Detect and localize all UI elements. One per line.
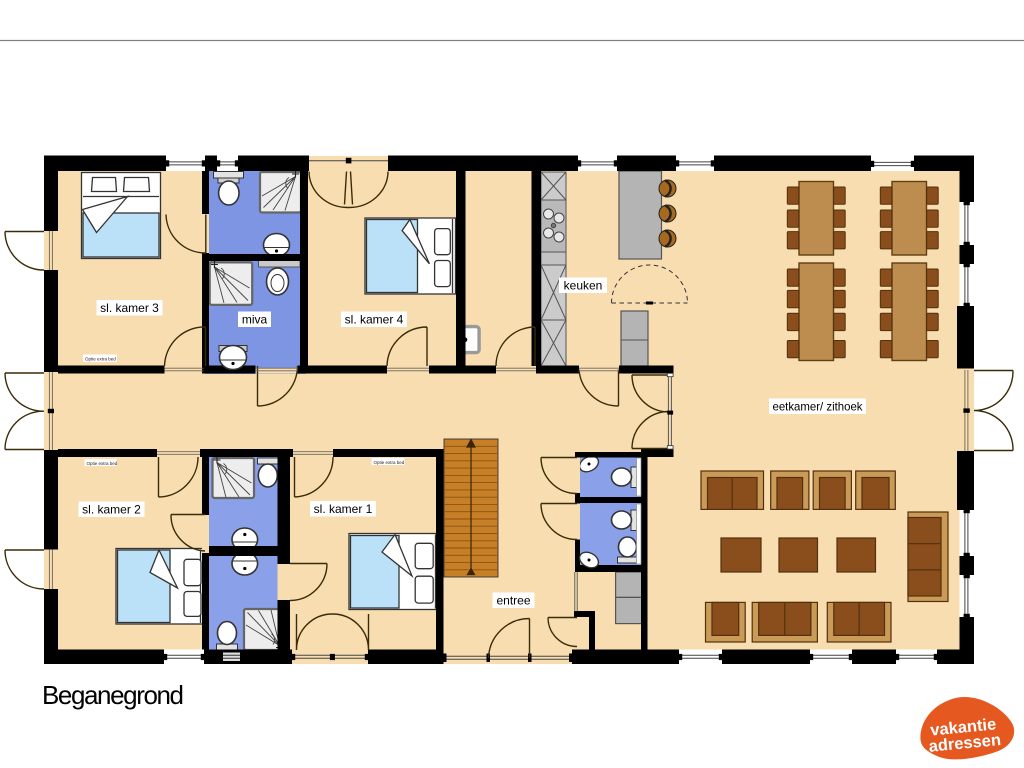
svg-text:Beganegrond: Beganegrond — [42, 680, 184, 710]
svg-text:sl. kamer 3: sl. kamer 3 — [100, 301, 159, 315]
svg-text:sl. kamer 1: sl. kamer 1 — [314, 502, 373, 516]
svg-text:Optie extra bed: Optie extra bed — [85, 357, 116, 362]
svg-text:sl. kamer 4: sl. kamer 4 — [345, 313, 404, 327]
svg-text:miva: miva — [242, 313, 268, 327]
svg-text:entree: entree — [496, 594, 530, 608]
svg-text:Optie extra bed: Optie extra bed — [87, 461, 118, 466]
svg-text:keuken: keuken — [564, 279, 603, 293]
svg-text:sl. kamer 2: sl. kamer 2 — [82, 503, 141, 517]
svg-text:Optie extra bed: Optie extra bed — [374, 460, 405, 465]
svg-text:eetkamer/ zithoek: eetkamer/ zithoek — [773, 400, 864, 414]
